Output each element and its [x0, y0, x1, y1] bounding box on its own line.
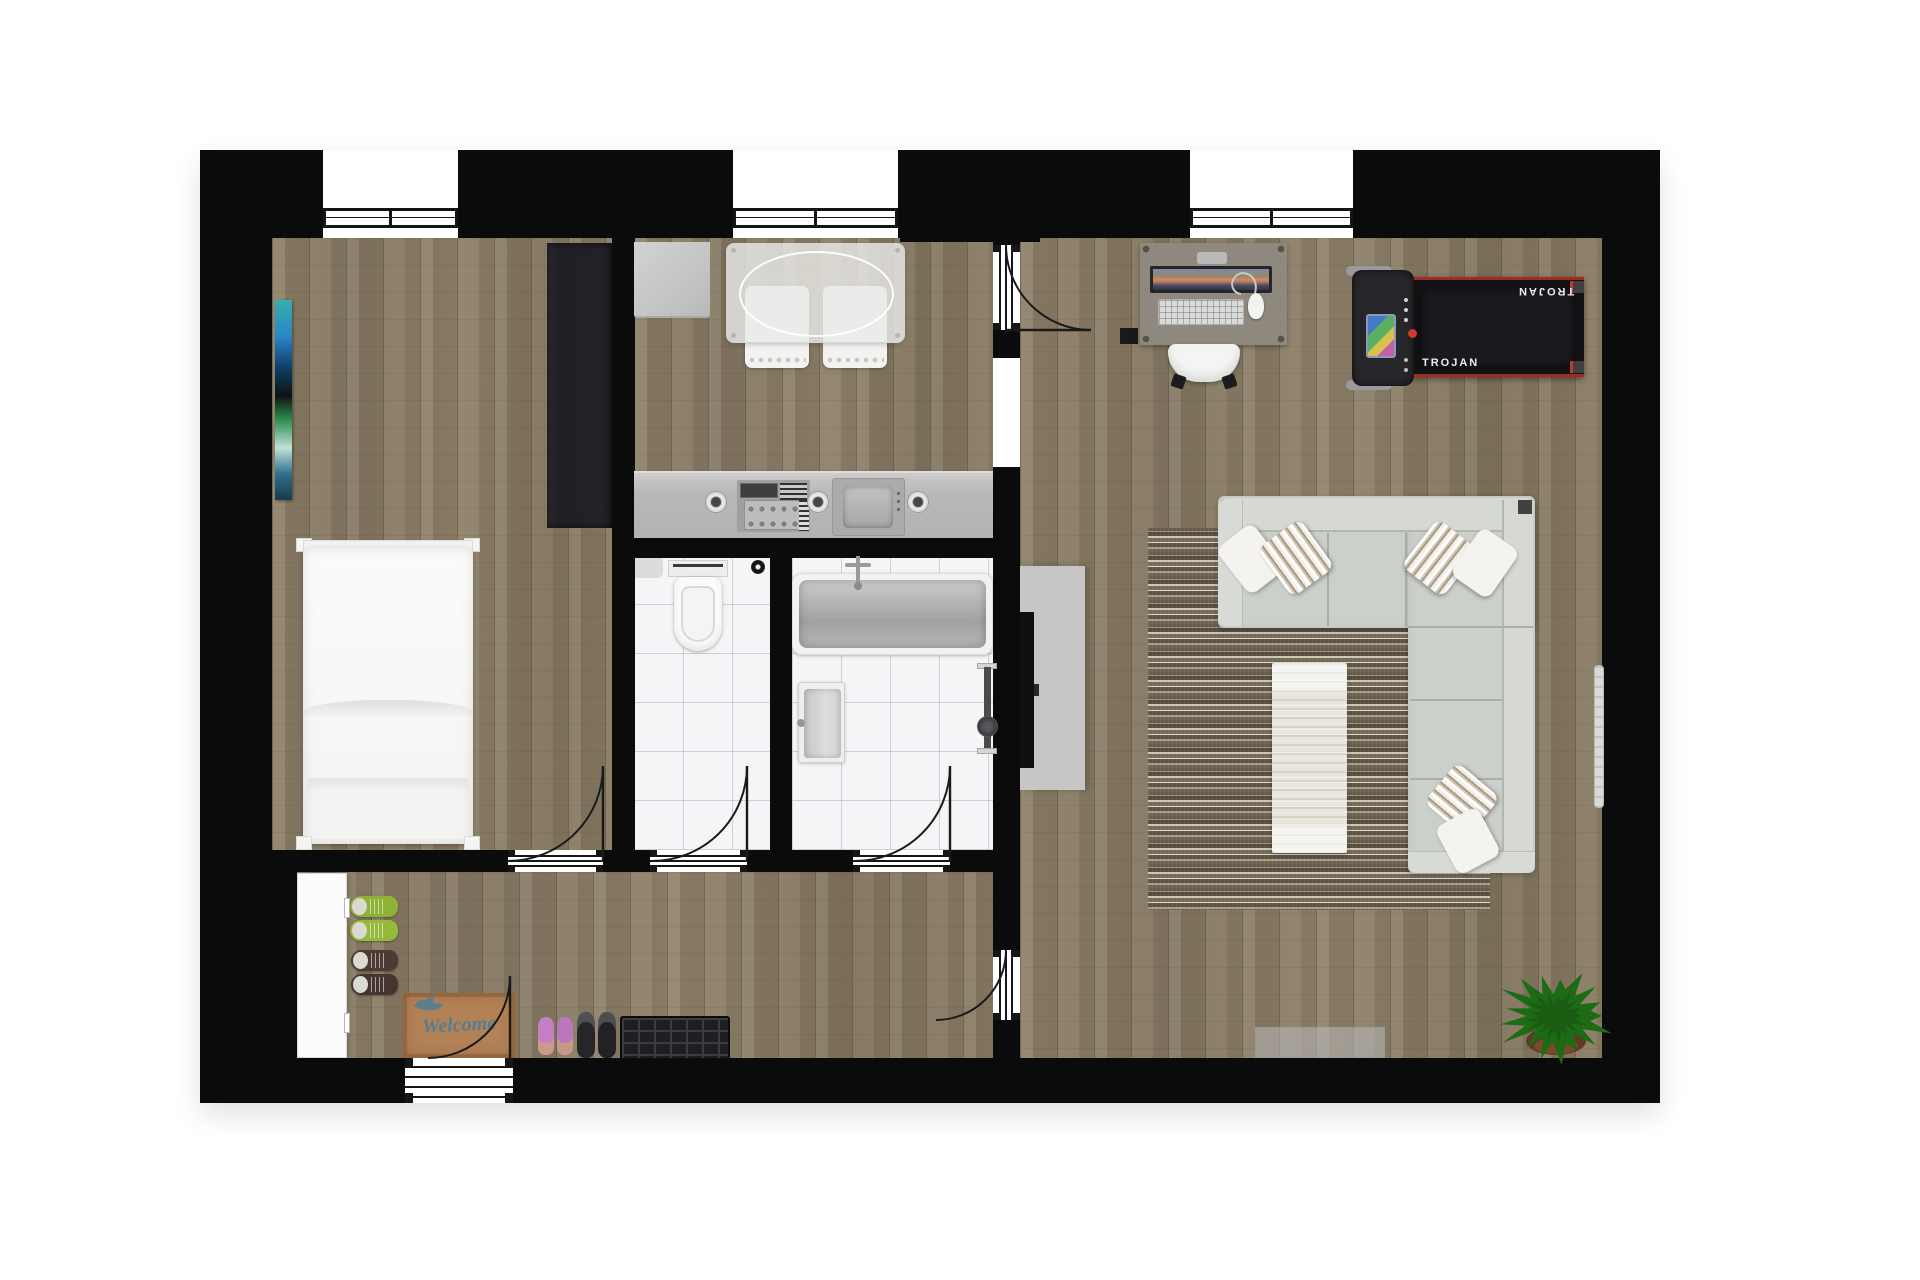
sofa-corner-notch: [1518, 500, 1532, 514]
hob-burner: [908, 492, 928, 512]
wardrobe: [547, 243, 612, 528]
cooktop: [737, 480, 810, 532]
dining-table: [726, 243, 905, 343]
console-buttons: [1404, 298, 1408, 302]
radiator-cap: [977, 748, 997, 754]
treadmill-belt: [1420, 286, 1576, 368]
towel-radiator: [977, 663, 997, 754]
threshold-bedroom-door: [508, 850, 603, 872]
brown-shoe: [351, 950, 398, 971]
console-display: [1366, 314, 1396, 358]
brown-shoe: [351, 974, 398, 995]
wall-art: [275, 300, 292, 500]
wall-wc-bath: [770, 558, 792, 852]
treadmill-brand-label: TROJAN: [1422, 357, 1479, 369]
console-red-button: [1408, 329, 1417, 338]
sink-basin: [843, 486, 893, 528]
window-kitchen: [733, 150, 898, 238]
bathtub: [792, 573, 993, 655]
bench-light-band: [1272, 825, 1347, 853]
bed-sheet: [307, 778, 469, 839]
pc-tower: [1120, 328, 1138, 344]
treadmill-console: [1352, 270, 1414, 386]
wall-radiator: [1594, 665, 1604, 808]
wall-right: [1602, 150, 1660, 1103]
toilet: [668, 560, 728, 652]
hob-burner: [706, 492, 726, 512]
threshold-entry-door: [405, 1058, 513, 1103]
table-screw: [895, 333, 900, 338]
washbasin-bowl: [804, 689, 841, 758]
sofa-seam: [1327, 533, 1329, 626]
radiator-bar: [984, 667, 991, 751]
bed-post: [296, 836, 312, 850]
cabinet-handle: [344, 898, 350, 918]
hob-burner: [808, 492, 828, 512]
sink: [832, 478, 905, 536]
desk: [1140, 243, 1287, 345]
shoe-cabinet: [297, 873, 347, 1058]
wall-kitchen-bath: [634, 538, 993, 558]
monitor: [1150, 266, 1272, 293]
green-sneaker: [350, 920, 398, 941]
treadmill-deck: TROJAN TROJAN: [1412, 277, 1584, 377]
threshold-living-door-bottom: [993, 950, 1020, 1020]
faucet-head: [854, 582, 862, 590]
threshold-bath-door: [853, 850, 950, 872]
green-sneaker: [350, 896, 398, 917]
cistern-lid-line: [673, 564, 723, 567]
kitchen-counter: [634, 471, 993, 538]
monitor-screen: [1153, 269, 1269, 290]
monitor-stand: [1197, 252, 1227, 267]
bed-post: [464, 836, 480, 850]
sofa-backrest-top: [1222, 498, 1531, 532]
table-screw: [895, 248, 900, 253]
black-shoe: [598, 1012, 616, 1058]
double-bed: [296, 538, 480, 850]
window-frame: [733, 208, 898, 228]
black-shoe: [577, 1012, 595, 1058]
knob-panel: [744, 500, 800, 530]
oven-window: [740, 483, 778, 498]
wall-left-jog: [200, 850, 297, 1103]
welcome-mat: Welcome: [403, 993, 515, 1058]
cabinet-handle: [344, 1013, 350, 1033]
floor-drain: [751, 560, 765, 574]
window-bedroom: [323, 150, 458, 238]
threshold-wc-door: [650, 850, 747, 872]
washbasin-faucet: [797, 719, 805, 727]
table-glass-oval: [739, 251, 894, 337]
wall-bedroom-kitchen: [612, 238, 635, 872]
toilet-bowl: [674, 577, 722, 651]
tv-stand: [1034, 684, 1039, 696]
treadmill-brand-label-flipped: TROJAN: [1517, 285, 1574, 297]
coffee-bench: [1272, 663, 1347, 853]
keyboard: [1158, 299, 1244, 325]
window-frame: [323, 208, 458, 228]
welcome-mat-text: Welcome: [421, 1012, 496, 1039]
sofa-seam: [1408, 626, 1533, 628]
floor-mat: [1255, 1027, 1385, 1058]
sofa-seam: [1410, 699, 1502, 701]
fridge-cabinet: [634, 242, 710, 318]
mouse: [1248, 293, 1264, 319]
pink-flat: [538, 1017, 554, 1055]
window-living: [1190, 150, 1353, 238]
bed-duvet-fold: [303, 700, 473, 726]
window-frame: [1190, 208, 1353, 228]
washbasin: [798, 682, 845, 763]
treadmill: TROJAN TROJAN: [1346, 264, 1594, 392]
toilet-cistern: [668, 560, 728, 577]
desk-chair: [1168, 344, 1240, 382]
wall-top-jog: [900, 150, 1040, 242]
table-screw: [731, 333, 736, 338]
wall-opening-kitchen-living: [993, 358, 1020, 467]
shoe-bench: [620, 1016, 730, 1060]
corner-shelf: [635, 558, 663, 578]
toilet-seat: [681, 586, 715, 642]
bench-light-band: [1272, 663, 1347, 691]
shower-head: [977, 716, 998, 737]
bed-mattress: [303, 548, 473, 844]
treadmill-endcap: [1570, 361, 1584, 373]
bathtub-basin: [799, 580, 986, 648]
pink-flat: [557, 1017, 573, 1055]
sink-buttons: [897, 492, 900, 495]
tv: [1020, 612, 1034, 768]
sofa-seam: [1405, 533, 1407, 626]
threshold-living-door-top: [993, 245, 1020, 330]
bath-faucet: [845, 556, 875, 592]
floor-plan: Welcome TROJAN TROJAN: [0, 0, 1920, 1280]
table-screw: [731, 248, 736, 253]
